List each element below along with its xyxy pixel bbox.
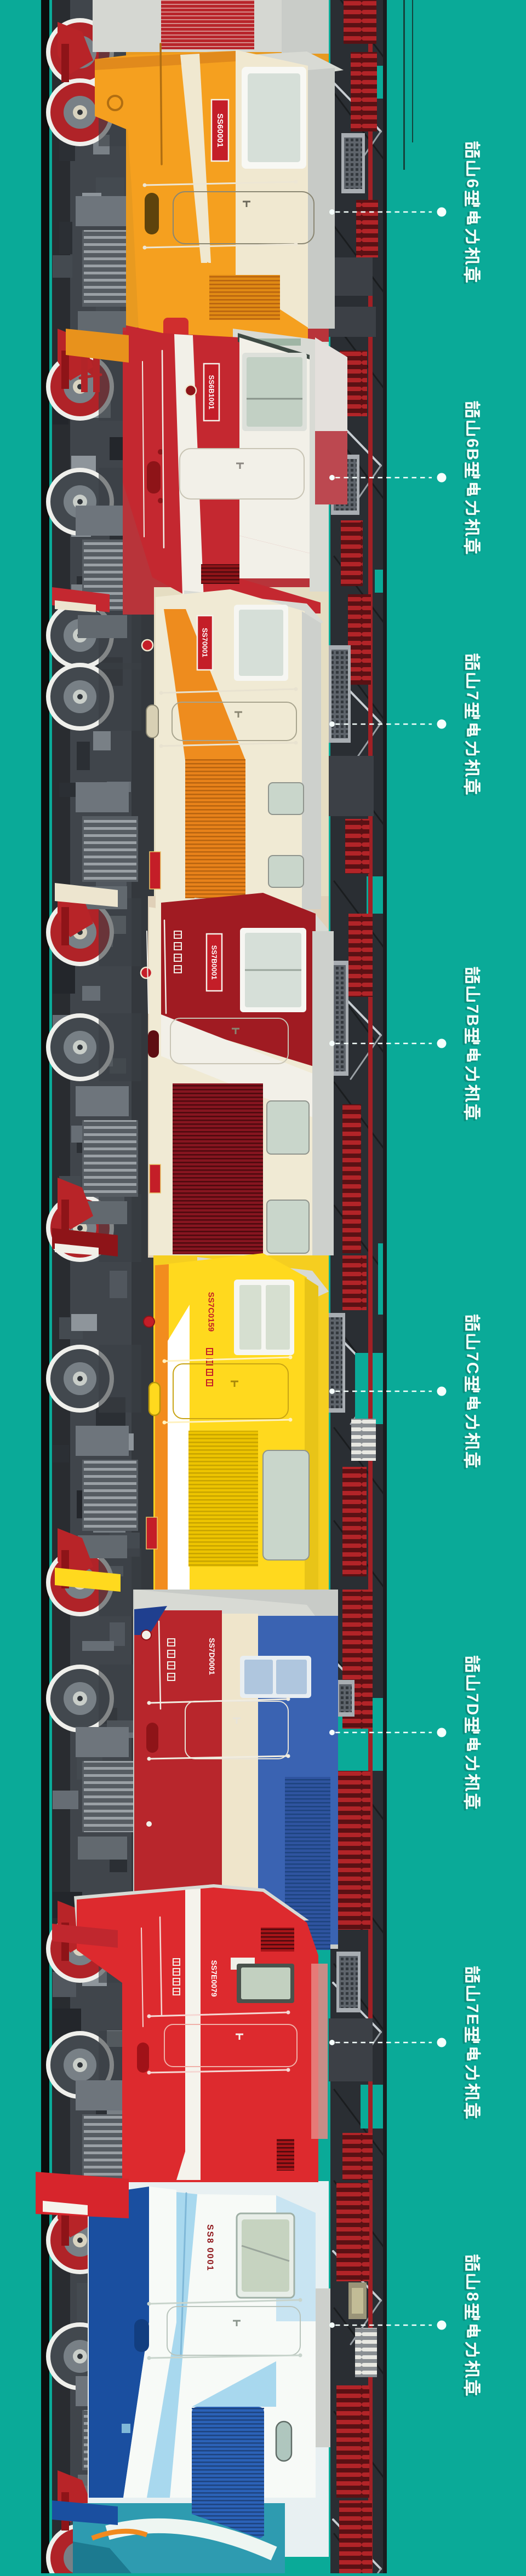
svg-text:SS70001: SS70001: [201, 628, 209, 657]
svg-text:6: 6: [464, 439, 482, 448]
svg-text:SS60001: SS60001: [215, 113, 225, 147]
svg-text:SS7D0001: SS7D0001: [208, 1638, 216, 1675]
svg-text:7: 7: [464, 1693, 482, 1702]
svg-text:7: 7: [464, 2004, 482, 2013]
svg-text:B: B: [464, 449, 482, 461]
svg-text:SS8 0001: SS8 0001: [205, 2224, 215, 2271]
svg-text:8: 8: [464, 2292, 482, 2301]
svg-text:7: 7: [464, 691, 482, 700]
svg-text:D: D: [464, 1703, 482, 1716]
svg-text:7: 7: [464, 1005, 482, 1014]
svg-text:B: B: [464, 1014, 482, 1026]
svg-text:SS7B0001: SS7B0001: [210, 945, 219, 980]
svg-text:SS6B1001: SS6B1001: [208, 375, 216, 410]
svg-text:6: 6: [464, 179, 482, 188]
svg-text:7: 7: [464, 1352, 482, 1361]
svg-text:SS7E0079: SS7E0079: [210, 1960, 219, 1997]
svg-text:C: C: [464, 1362, 482, 1374]
svg-text:SS7C0159: SS7C0159: [207, 1292, 216, 1332]
svg-text:E: E: [464, 2014, 482, 2025]
